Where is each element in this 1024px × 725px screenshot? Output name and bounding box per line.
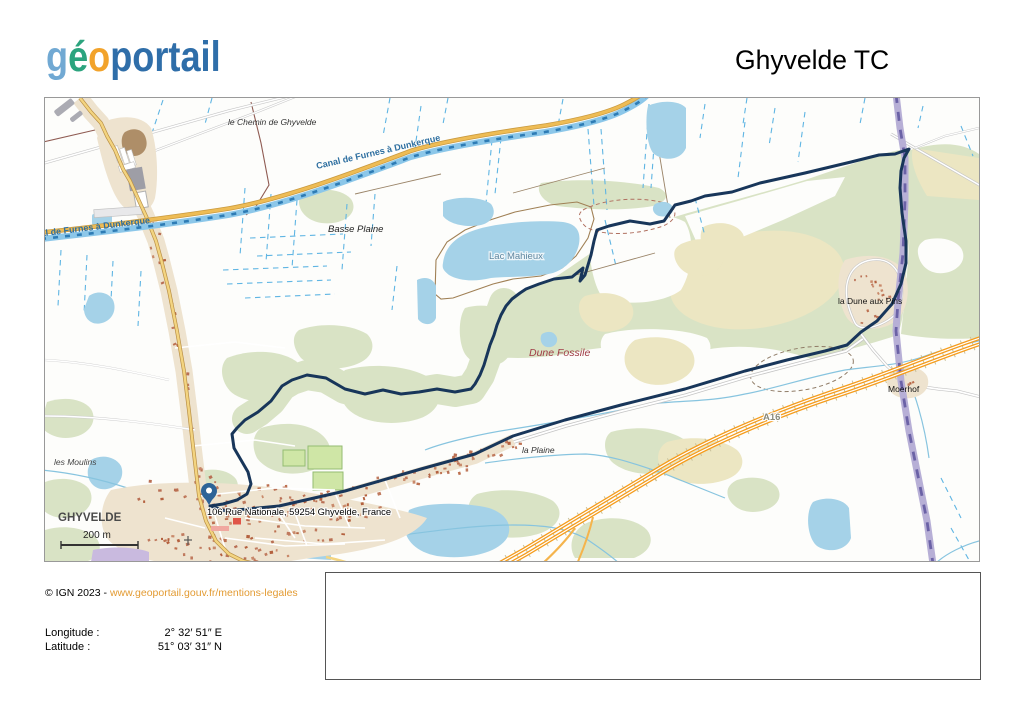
svg-text:la Dune aux Pins: la Dune aux Pins <box>838 296 902 306</box>
svg-text:Dune Fossile: Dune Fossile <box>529 347 590 359</box>
svg-text:Moerhof: Moerhof <box>888 384 920 394</box>
svg-text:GHYVELDE: GHYVELDE <box>58 512 122 524</box>
svg-text:106 Rue Nationale, 59254 Ghyve: 106 Rue Nationale, 59254 Ghyvelde, Franc… <box>207 507 391 517</box>
svg-text:le Chemin de Ghyvelde: le Chemin de Ghyvelde <box>228 117 317 127</box>
svg-text:la Plaine: la Plaine <box>522 445 555 455</box>
svg-text:Basse Plaine: Basse Plaine <box>328 224 383 235</box>
svg-text:A16: A16 <box>763 412 780 423</box>
svg-text:200 m: 200 m <box>83 530 111 541</box>
svg-text:les Moulins: les Moulins <box>54 457 97 467</box>
svg-text:Lac Mahieux: Lac Mahieux <box>489 251 543 262</box>
